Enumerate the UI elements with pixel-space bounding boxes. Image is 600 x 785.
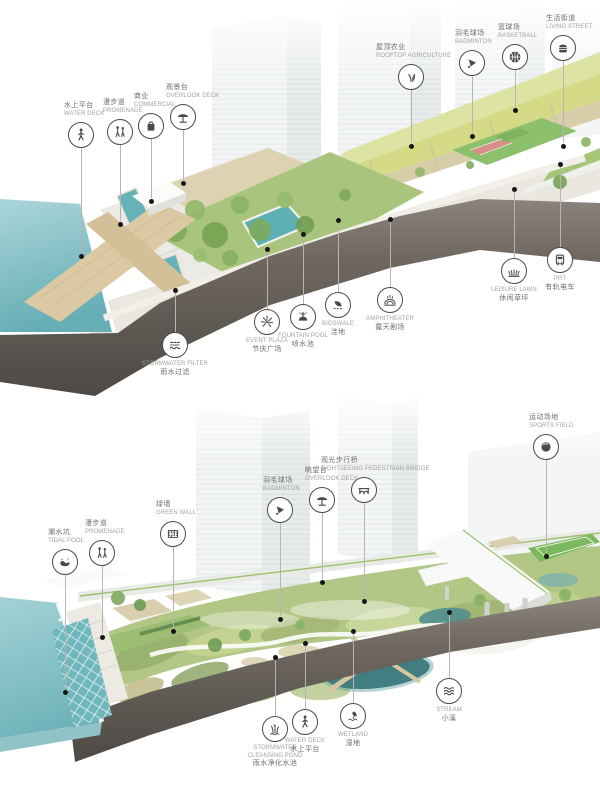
callout-label-zh: 雨水净化水池: [246, 760, 304, 769]
callout-label-en: BIOSWALE: [322, 321, 354, 329]
leader-line: [65, 575, 66, 689]
callout-label: 篮球场 BASKETBALL: [498, 24, 537, 40]
callout-label-en: TIDAL POOL: [48, 538, 84, 546]
leader-line: [183, 130, 184, 180]
leader-line: [102, 566, 103, 634]
callout-label: 屋顶农业 ROOFTOP AGRICULTURE: [376, 44, 451, 60]
leader-line: [151, 139, 152, 198]
callout-label-en: SIGHTSEEING PEDESTRIAN BRIDGE: [321, 466, 430, 474]
street-food-icon: [550, 35, 576, 61]
leader-dot: [149, 199, 154, 204]
umbrella-icon: [309, 487, 335, 513]
leader-dot: [320, 580, 325, 585]
callout-label-en: AMPHITHEATER: [366, 316, 414, 324]
amphitheater-icon: [377, 287, 403, 313]
callout-label: STORMWATER FILTER 雨水过滤: [142, 361, 208, 377]
callout-label-en: SPORTS FIELD: [529, 423, 573, 431]
bioswale-icon: [325, 292, 351, 318]
callout-label-en: OVERLOOK DECK: [166, 93, 219, 101]
leader-dot: [512, 187, 517, 192]
lawn-icon: [501, 258, 527, 284]
wetland-icon: [340, 703, 366, 729]
leader-dot: [447, 610, 452, 615]
callout-label-en: COMMERCIAL: [134, 102, 176, 110]
callout-label-zh: 潮水坑: [48, 529, 84, 538]
callout-label: 水上平台 WATER DECK: [64, 102, 104, 118]
callout-label: 潮水坑 TIDAL POOL: [48, 529, 84, 545]
callout-label-en: GREEN WALL: [156, 510, 196, 518]
leader-dot: [470, 134, 475, 139]
callout-label: 羽毛球场 BADMINTON: [455, 30, 492, 46]
water-filter-icon: [162, 332, 188, 358]
callout-label-zh: 绿墙: [156, 501, 196, 510]
callout-label: LEISURE LAWN 休闲草坪: [491, 287, 537, 303]
callout-label-en: BADMINTON: [455, 39, 492, 47]
shuttlecock-icon: [459, 50, 485, 76]
callout-label-zh: 观光步行桥: [321, 457, 430, 466]
callout-label: 绿墙 GREEN WALL: [156, 501, 196, 517]
leader-dot: [336, 218, 341, 223]
leader-dot: [100, 635, 105, 640]
leader-line: [267, 252, 268, 309]
callout-label: WATER DECK 水上平台: [285, 738, 325, 754]
leader-line: [449, 615, 450, 678]
callout-label-zh: 洼地: [322, 329, 354, 338]
leader-line: [353, 634, 354, 703]
tidal-pool-icon: [52, 549, 78, 575]
leader-line: [305, 646, 306, 709]
shuttlecock-icon: [267, 497, 293, 523]
tram-icon: [547, 247, 573, 273]
leader-line: [173, 547, 174, 628]
callout-label-zh: 生活街道: [546, 15, 592, 24]
leader-dot: [265, 247, 270, 252]
leader-line: [364, 503, 365, 598]
shopping-bag-icon: [138, 113, 164, 139]
leader-dot: [278, 617, 283, 622]
callout-label-en: BASKETBALL: [498, 33, 537, 41]
leader-dot: [181, 181, 186, 186]
leader-dot: [409, 144, 414, 149]
callout-label-en: FOUNTAIN POOL: [278, 333, 328, 341]
leader-line: [411, 90, 412, 143]
callout-label-en: OVERLOOK DECK: [305, 476, 358, 484]
leader-line: [175, 293, 176, 332]
umbrella-icon: [170, 104, 196, 130]
leader-dot: [388, 217, 393, 222]
callout-label-zh: 漫步道: [85, 520, 125, 529]
callout-label: AMPHITHEATER 露天剧场: [366, 316, 414, 332]
callout-label: 运动场地 SPORTS FIELD: [529, 414, 573, 430]
leader-dot: [544, 554, 549, 559]
leader-dot: [79, 254, 84, 259]
callout-label-en: PROMENADE: [85, 529, 125, 537]
leader-dot: [561, 144, 566, 149]
fountain-icon: [290, 304, 316, 330]
pedestrian-icon: [292, 709, 318, 735]
fireworks-icon: [254, 309, 280, 335]
leader-dot: [362, 599, 367, 604]
leader-line: [280, 523, 281, 616]
landscape-section-diagram-page: 水上平台 WATER DECK 漫步道 PROMENADE 商业 COMMERC…: [0, 0, 600, 785]
callout-label: FOUNTAIN POOL 喷水池: [278, 333, 328, 349]
leader-line: [472, 76, 473, 133]
callout-label-zh: 羽毛球场: [455, 30, 492, 39]
leader-dot: [273, 655, 278, 660]
callout-label-en: LIVING STREET: [546, 24, 592, 32]
pedestrian-icon: [68, 122, 94, 148]
callout-label-en: WATER DECK: [64, 111, 104, 119]
leader-line: [120, 145, 121, 221]
leader-line: [338, 223, 339, 292]
walkers-icon: [89, 540, 115, 566]
leader-dot: [118, 222, 123, 227]
callout-label-zh: 屋顶农业: [376, 44, 451, 53]
callout-label-en: LEISURE LAWN: [491, 287, 537, 295]
leader-dot: [63, 690, 68, 695]
stream-icon: [436, 678, 462, 704]
callout-label-zh: 有轨电车: [545, 284, 575, 293]
callout-label: PRT 有轨电车: [545, 276, 575, 292]
callout-label-zh: 雨水过滤: [142, 369, 208, 378]
leader-dot: [301, 232, 306, 237]
leader-dot: [171, 629, 176, 634]
callout-label: 生活街道 LIVING STREET: [546, 15, 592, 31]
leader-line: [563, 61, 564, 143]
leader-dot: [173, 288, 178, 293]
leader-line: [560, 167, 561, 247]
callout-label-en: PRT: [545, 276, 575, 284]
callout-label: BIOSWALE 洼地: [322, 321, 354, 337]
bridge-icon: [351, 477, 377, 503]
callout-label: 观景台 OVERLOOK DECK: [166, 84, 219, 100]
callout-label-en: WATER DECK: [285, 738, 325, 746]
callout-label-zh: 喷水池: [278, 341, 328, 350]
callout-label-zh: 湿地: [338, 740, 368, 749]
leader-dot: [513, 108, 518, 113]
leader-dot: [558, 162, 563, 167]
callout-label-zh: 羽毛球场: [263, 477, 300, 486]
callout-label-zh: 篮球场: [498, 24, 537, 33]
callout-label: 漫步道 PROMENADE: [85, 520, 125, 536]
leader-line: [515, 70, 516, 107]
callout-label-zh: 观景台: [166, 84, 219, 93]
leader-line: [275, 660, 276, 716]
leader-line: [322, 513, 323, 579]
leader-line: [546, 460, 547, 553]
leader-line: [390, 222, 391, 287]
callout-label: 观光步行桥 SIGHTSEEING PEDESTRIAN BRIDGE: [321, 457, 430, 473]
callout-label-en: WETLAND: [338, 732, 368, 740]
callout-label: STREAM 小溪: [436, 707, 462, 723]
callout-label-zh: 水上平台: [64, 102, 104, 111]
leader-line: [514, 192, 515, 258]
sports-ball-icon: [533, 434, 559, 460]
callout-label-zh: 休闲草坪: [491, 295, 537, 304]
callout-label-en: STORMWATER FILTER: [142, 361, 208, 369]
callout-label-zh: 露天剧场: [366, 324, 414, 333]
leader-line: [81, 148, 82, 253]
callout-label-zh: 运动场地: [529, 414, 573, 423]
leader-dot: [303, 641, 308, 646]
callout-label-zh: 小溪: [436, 715, 462, 724]
callout-label: WETLAND 湿地: [338, 732, 368, 748]
sprout-icon: [398, 64, 424, 90]
callout-label-en: STREAM: [436, 707, 462, 715]
green-wall-icon: [160, 521, 186, 547]
callout-label-zh: 水上平台: [285, 746, 325, 755]
callout-label: 羽毛球场 BADMINTON: [263, 477, 300, 493]
leader-line: [303, 237, 304, 304]
walkers-icon: [107, 119, 133, 145]
basketball-icon: [502, 44, 528, 70]
leader-dot: [351, 629, 356, 634]
callout-label-en: BADMINTON: [263, 486, 300, 494]
callout-label-en: ROOFTOP AGRICULTURE: [376, 53, 451, 61]
